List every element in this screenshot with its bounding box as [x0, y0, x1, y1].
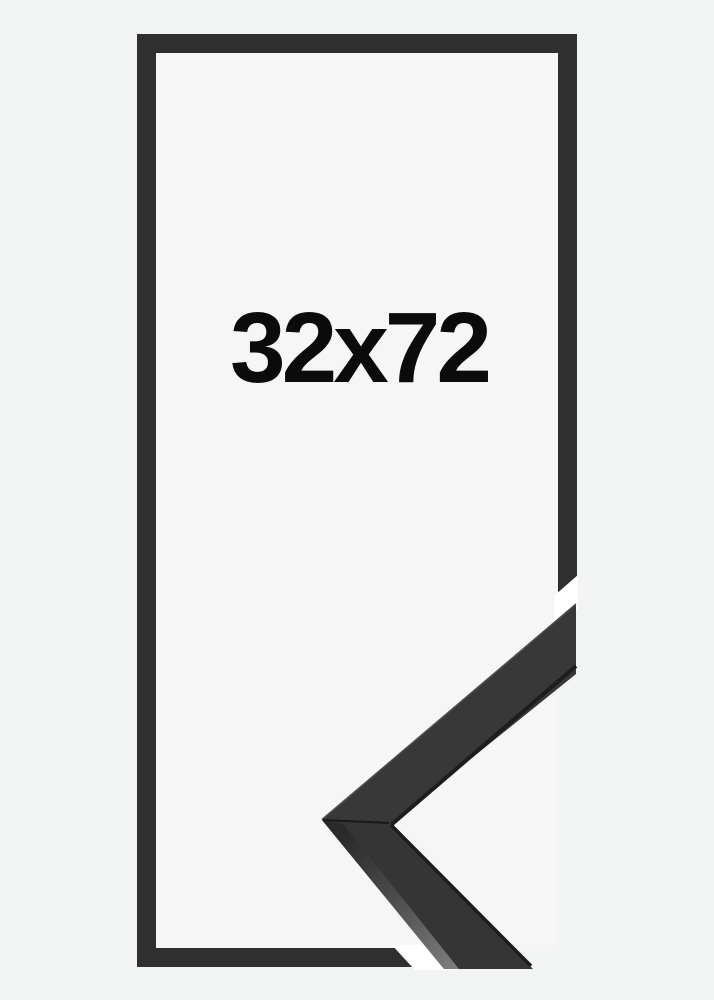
- product-image: 32x72: [0, 0, 714, 1000]
- size-label: 32x72: [230, 298, 488, 398]
- frame-photo-composite: [0, 0, 714, 1000]
